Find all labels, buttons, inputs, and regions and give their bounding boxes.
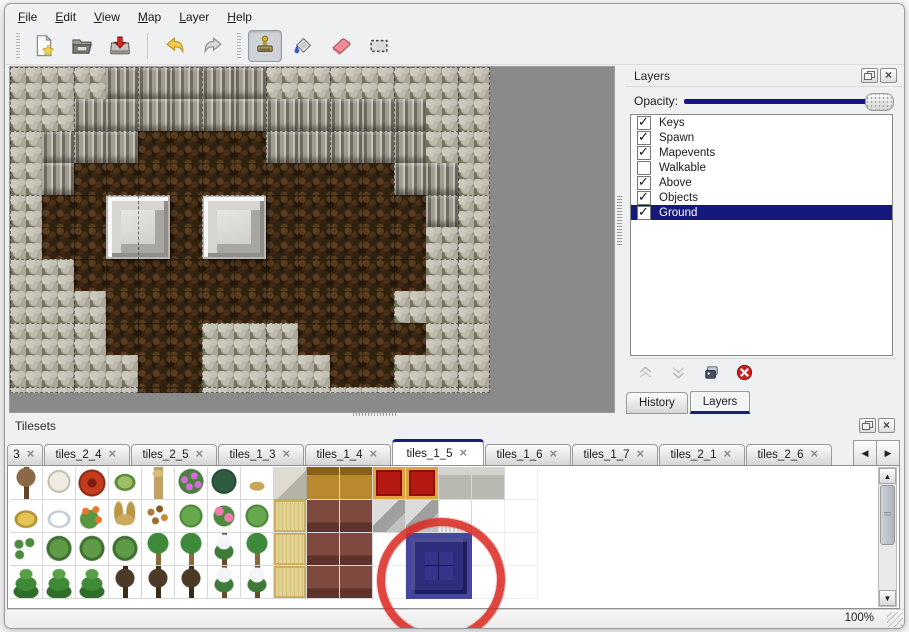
map-tile-dark-floor[interactable] [74,195,106,227]
layer-visibility-checkbox[interactable] [637,191,651,205]
map-tile-dark-floor[interactable] [138,131,170,163]
map-tile-dark-floor[interactable] [138,291,170,323]
map-tile-dark-floor[interactable] [234,259,266,291]
map-tile-dark-floor[interactable] [298,227,330,259]
map-tile-dark-floor[interactable] [298,195,330,227]
tileset-tile-conifer[interactable] [43,566,76,599]
map-tile-pale-rock[interactable] [426,387,458,393]
tileset-tile-wood-tile[interactable] [307,467,340,500]
map-tile-pale-rock[interactable] [202,323,234,355]
map-tile-pale-rock[interactable] [10,99,42,131]
layers-panel-title: Layers [634,69,670,83]
map-tile-cliff-wall[interactable] [362,99,394,131]
map-tile-pale-rock[interactable] [426,227,458,259]
layer-row-ground[interactable]: Ground [631,205,892,220]
map-tile-cliff-wall[interactable] [202,67,234,99]
map-tile-dark-floor[interactable] [170,195,202,227]
tileset-tile-maroon-tile[interactable] [340,566,373,599]
map-tile-dark-floor[interactable] [42,195,74,227]
tileset-tile-blank[interactable] [472,566,505,599]
map-tile-dark-floor[interactable] [106,259,138,291]
map-tile-dark-floor[interactable] [202,291,234,323]
tileset-tile-palm[interactable] [241,533,274,566]
tileset-tile-blank[interactable] [505,500,538,533]
map-tile-cliff-wall[interactable] [138,99,170,131]
map-tile-pale-rock[interactable] [10,195,42,227]
map-tile-dark-floor[interactable] [202,131,234,163]
map-tile-dark-floor[interactable] [74,227,106,259]
tileset-tile-carpet-red[interactable] [406,467,439,500]
map-tile-pale-rock[interactable] [10,227,42,259]
tileset-tile-tree-dead[interactable] [10,467,43,500]
tileset-tile-conifer-snow[interactable] [208,566,241,599]
map-tile-pale-rock[interactable] [394,67,426,99]
dock-tab-layers[interactable]: Layers [690,391,751,414]
tileset-tile-curtain-white[interactable] [439,500,472,533]
tileset-tile-flower-red-big[interactable] [76,467,109,500]
layer-name-label: Objects [659,192,698,204]
tileset-tile-carpet-red[interactable] [373,467,406,500]
map-tile-dark-floor[interactable] [362,163,394,195]
map-tile-dark-floor[interactable] [138,163,170,195]
map-tile-pale-rock[interactable] [458,163,490,195]
map-tile-pale-rock[interactable] [106,387,138,393]
undo-button[interactable] [158,30,192,62]
toolbar-drag-handle[interactable] [236,33,242,59]
map-tile-pale-rock[interactable] [458,227,490,259]
map-tile-pale-rock[interactable] [298,355,330,387]
map-tile-pale-rock[interactable] [42,387,74,393]
map-tile-dark-floor[interactable] [170,387,202,393]
map-tile-pale-rock[interactable] [74,291,106,323]
opacity-label: Opacity: [634,94,678,108]
tileset-tab-tiles_1_4[interactable]: tiles_1_4 [305,444,391,466]
map-tile-cliff-wall[interactable] [202,99,234,131]
layer-visibility-checkbox[interactable] [637,131,651,145]
tileset-tile-shelf-gray[interactable] [373,500,406,533]
tileset-tile-lilypad[interactable] [175,500,208,533]
map-tile-cliff-wall[interactable] [330,131,362,163]
map-tile-pale-rock[interactable] [266,323,298,355]
map-tile-dark-floor[interactable] [170,227,202,259]
map-tile-pale-rock[interactable] [426,259,458,291]
map-tile-dark-floor[interactable] [138,259,170,291]
map-tile-pale-rock[interactable] [42,99,74,131]
map-tile-cliff-wall[interactable] [170,99,202,131]
tileset-tile-gray-tile[interactable] [439,467,472,500]
scroll-down-button[interactable]: ▼ [879,590,896,606]
map-tile-dark-floor[interactable] [394,259,426,291]
map-tile-dark-floor[interactable] [106,163,138,195]
map-tile-pale-rock[interactable] [266,387,298,393]
map-tile-dark-floor[interactable] [266,195,298,227]
map-tile-dark-floor[interactable] [362,259,394,291]
tileset-tile-palm[interactable] [142,533,175,566]
map-tile-dark-floor[interactable] [106,291,138,323]
map-tile-dark-floor[interactable] [362,227,394,259]
map-tile-cliff-wall[interactable] [74,131,106,163]
layer-row-above[interactable]: Above [631,175,892,190]
map-canvas[interactable] [9,66,615,413]
layer-duplicate-button[interactable] [698,363,724,385]
map-tile-pale-rock[interactable] [74,67,106,99]
map-tile-cliff-wall[interactable] [106,67,138,99]
map-tile-pale-rock[interactable] [394,291,426,323]
map-tile-pale-rock[interactable] [458,355,490,387]
zoom-level-label: 100% [845,612,874,624]
map-tile-pale-rock[interactable] [266,355,298,387]
map-tile-pale-rock[interactable] [10,355,42,387]
vertical-splitter[interactable] [613,66,626,412]
tileset-tile-tree-dark[interactable] [175,566,208,599]
close-tab-icon[interactable] [109,450,119,460]
map-tile-dark-floor[interactable] [330,323,362,355]
map-tile-dark-floor[interactable] [362,195,394,227]
rect-select-button[interactable] [362,30,396,62]
map-tile-dark-floor[interactable] [138,355,170,387]
float-panel-icon[interactable] [861,68,878,83]
save-button[interactable] [103,30,137,62]
tileset-tab-label: tiles_1_7 [583,449,629,461]
tileset-tile-trunk-tan[interactable] [142,467,175,500]
map-tile-dark-floor[interactable] [170,259,202,291]
map-tile-pale-rock[interactable] [362,387,394,393]
menu-layer[interactable]: Layer [170,7,218,27]
layer-delete-button[interactable] [731,363,757,385]
map-tile-dark-floor[interactable] [170,291,202,323]
map-tile-cliff-wall[interactable] [234,99,266,131]
map-tile-pale-rock[interactable] [458,67,490,99]
menu-view[interactable]: View [85,7,129,27]
tileset-tile-tatami[interactable] [274,500,307,533]
map-tile-dark-floor[interactable] [330,259,362,291]
map-tile-pale-rock[interactable] [74,387,106,393]
map-tile-pale-rock[interactable] [266,67,298,99]
tileset-tile-lilypad[interactable] [241,500,274,533]
float-panel-icon[interactable] [859,418,876,433]
close-tab-icon[interactable] [460,449,470,459]
tileset-tile-tatami[interactable] [274,566,307,599]
map-tile-pale-rock[interactable] [10,67,42,99]
map-tile-pale-rock[interactable] [42,259,74,291]
tileset-tile-stump-green[interactable] [109,467,142,500]
close-tab-icon[interactable] [811,450,821,460]
map-tile-dark-floor[interactable] [106,323,138,355]
map-tile-dark-floor[interactable] [234,163,266,195]
close-tab-icon[interactable] [196,450,206,460]
map-tile-cliff-wall[interactable] [106,99,138,131]
map-tile-pale-rock[interactable] [458,387,490,393]
toolbar-separator [147,33,148,59]
map-tile-cliff-wall[interactable] [138,67,170,99]
layer-down-button[interactable] [665,363,691,385]
map-tile-pale-rock[interactable] [74,355,106,387]
map-tile-dark-floor[interactable] [234,291,266,323]
map-tile-cliff-wall[interactable] [362,131,394,163]
close-tab-icon[interactable] [27,450,37,460]
map-tile-pale-rock[interactable] [330,67,362,99]
map-tile-pale-rock[interactable] [458,323,490,355]
map-tile-dark-floor[interactable] [266,291,298,323]
map-tile-dark-floor[interactable] [330,355,362,387]
map-tile-pale-rock[interactable] [74,323,106,355]
map-tile-dark-floor[interactable] [298,163,330,195]
map-tile-cliff-wall[interactable] [266,99,298,131]
tileset-tab-tiles_1_3[interactable]: tiles_1_3 [218,444,304,466]
map-tile-cliff-wall[interactable] [394,131,426,163]
tileset-tab-label: tiles_1_5 [406,448,452,460]
tileset-tile-wood-tile[interactable] [340,467,373,500]
close-panel-icon[interactable] [878,418,895,433]
map-tile-pale-rock[interactable] [10,259,42,291]
close-tab-icon[interactable] [550,450,560,460]
tileset-tab-tiles_2_4[interactable]: tiles_2_4 [44,444,130,466]
map-tile-pale-rock[interactable] [394,387,426,393]
map-tile-dark-floor[interactable] [266,227,298,259]
tileset-tab-tiles_1_7[interactable]: tiles_1_7 [572,444,658,466]
map-tile-dark-floor[interactable] [202,259,234,291]
tileset-tile-weed-tan[interactable] [241,467,274,500]
tileset-tile-flowers-pink[interactable] [208,500,241,533]
map-tile-cliff-wall[interactable] [266,131,298,163]
map-tile-pale-rock[interactable] [458,195,490,227]
map-tile-pale-rock[interactable] [362,67,394,99]
map-tile-pale-rock[interactable] [298,387,330,393]
map-tile-cliff-wall[interactable] [74,99,106,131]
map-tile-pale-rock[interactable] [106,355,138,387]
redo-button[interactable] [196,30,230,62]
map-tile-dark-floor[interactable] [266,163,298,195]
close-tab-icon[interactable] [724,450,734,460]
map-tile-cliff-wall[interactable] [234,67,266,99]
map-tile-dark-floor[interactable] [394,227,426,259]
close-tab-icon[interactable] [637,450,647,460]
map-tile-dark-floor[interactable] [202,163,234,195]
dock-tab-history[interactable]: History [626,392,688,414]
tileset-tile-shrub-white[interactable] [43,467,76,500]
map-tile-pale-rock[interactable] [458,99,490,131]
map-tile-cliff-wall[interactable] [170,67,202,99]
map-tile-cliff-wall[interactable] [42,163,74,195]
map-tile-dark-floor[interactable] [138,323,170,355]
map-tile-cliff-wall[interactable] [42,131,74,163]
map-tile-pale-rock[interactable] [42,291,74,323]
map-tile-pale-rock[interactable] [234,355,266,387]
map-tile-dark-floor[interactable] [266,259,298,291]
layer-row-keys[interactable]: Keys [631,115,892,130]
tileset-tab-tiles_1_6[interactable]: tiles_1_6 [485,444,571,466]
map-tile-dark-floor[interactable] [362,291,394,323]
map-tile-dark-floor[interactable] [234,131,266,163]
tileset-tile-maroon-tile[interactable] [307,500,340,533]
tileset-tab-tiles_2_6[interactable]: tiles_2_6 [746,444,832,466]
map-tile-pale-rock[interactable] [426,291,458,323]
stamp-button[interactable] [248,30,282,62]
layer-visibility-checkbox[interactable] [637,116,651,130]
close-tab-icon[interactable] [283,450,293,460]
tileset-tab-3[interactable]: 3 [7,444,43,466]
fill-bucket-button[interactable] [286,30,320,62]
tileset-tile-gray-tile[interactable] [472,467,505,500]
new-file-button[interactable] [27,30,61,62]
tileset-vertical-scrollbar[interactable]: ▲ ▼ [878,467,897,607]
tileset-tile-leaves[interactable] [142,500,175,533]
tileset-tile-conifer[interactable] [76,566,109,599]
tileset-tile-palm[interactable] [175,533,208,566]
map-tile-cliff-wall[interactable] [394,99,426,131]
tileset-tile-conifer[interactable] [10,566,43,599]
map-tile-pale-rock[interactable] [458,131,490,163]
tileset-tile-tatami[interactable] [274,533,307,566]
tileset-tile-blank[interactable] [472,533,505,566]
map-tile-pale-rock[interactable] [202,387,234,393]
map-tile-pale-rock[interactable] [10,387,42,393]
layer-row-spawn[interactable]: Spawn [631,130,892,145]
map-tile-pale-rock[interactable] [330,387,362,393]
tileset-tile-maroon-tile[interactable] [340,500,373,533]
tileset-tile-maroon-tile[interactable] [307,533,340,566]
tileset-tile-conifer-snow[interactable] [208,533,241,566]
opacity-slider[interactable] [684,91,894,111]
map-tile-dark-floor[interactable] [394,323,426,355]
layer-visibility-checkbox[interactable] [637,176,651,190]
map-tile-pale-rock[interactable] [298,67,330,99]
map-tile-dark-floor[interactable] [362,355,394,387]
eraser-button[interactable] [324,30,358,62]
resize-grip[interactable] [887,612,903,627]
tileset-tile-flowers-orange[interactable] [76,500,109,533]
map-tile-dark-floor[interactable] [138,387,170,393]
map-tile-cliff-wall[interactable] [330,99,362,131]
map-tile-dark-floor[interactable] [170,355,202,387]
tileset-tile-blank[interactable] [505,566,538,599]
tileset-tile-blank[interactable] [505,467,538,500]
layer-actions-toolbar [632,358,896,387]
tileset-tile-maroon-tile[interactable] [307,566,340,599]
tileset-tab-tiles_2_5[interactable]: tiles_2_5 [131,444,217,466]
layer-visibility-checkbox[interactable] [637,146,651,160]
tileset-tile-snow-mound[interactable] [43,500,76,533]
layer-row-walkable[interactable]: Walkable [631,160,892,175]
map-tile-cliff-wall[interactable] [298,131,330,163]
map-block-tile[interactable] [106,195,170,259]
menu-edit[interactable]: Edit [46,7,85,27]
tileset-tile-blank[interactable] [373,566,406,599]
map-tile-dark-floor[interactable] [330,163,362,195]
map-block-tile[interactable] [202,195,266,259]
map-tile-pale-rock[interactable] [458,259,490,291]
tileset-tile-grass-dry[interactable] [109,500,142,533]
map-tile-dark-floor[interactable] [170,323,202,355]
map-tile-pale-rock[interactable] [10,323,42,355]
map-tile-pale-rock[interactable] [42,355,74,387]
layer-up-button[interactable] [632,363,658,385]
tileset-tile-shelf-gray[interactable] [406,500,439,533]
tileset-tile-bush-green[interactable] [43,533,76,566]
layer-row-mapevents[interactable]: Mapevents [631,145,892,160]
map-tile-pale-rock[interactable] [426,99,458,131]
tileset-tile-fern-dark[interactable] [208,467,241,500]
toolbar-drag-handle[interactable] [15,33,21,59]
tileset-tile-blank[interactable] [373,533,406,566]
map-tile-cliff-wall[interactable] [426,163,458,195]
map-tile-dark-floor[interactable] [42,227,74,259]
tileset-tile-tree-dark[interactable] [142,566,175,599]
tileset-tile-stone-tile[interactable] [274,467,307,500]
open-folder-button[interactable] [65,30,99,62]
map-tile-pale-rock[interactable] [42,67,74,99]
tileset-tile-maroon-tile[interactable] [340,533,373,566]
map-tile-pale-rock[interactable] [234,323,266,355]
scroll-tabs-right-button[interactable]: ▶ [877,440,900,467]
tileset-tile-blank[interactable] [505,533,538,566]
map-tile-dark-floor[interactable] [330,195,362,227]
scrollbar-thumb[interactable] [880,485,895,545]
menu-map[interactable]: Map [129,7,170,27]
layer-visibility-checkbox[interactable] [637,161,651,175]
tileset-tile-tree-dark[interactable] [109,566,142,599]
map-tile-pale-rock[interactable] [42,323,74,355]
map-tile-pale-rock[interactable] [394,355,426,387]
layer-row-objects[interactable]: Objects [631,190,892,205]
map-tile-pale-rock[interactable] [426,323,458,355]
close-tab-icon[interactable] [370,450,380,460]
map-tile-dark-floor[interactable] [74,259,106,291]
tileset-tile-bush-green[interactable] [109,533,142,566]
map-tile-pale-rock[interactable] [10,131,42,163]
map-tile-pale-rock[interactable] [10,291,42,323]
map-tile-dark-floor[interactable] [170,163,202,195]
map-tile-pale-rock[interactable] [426,355,458,387]
map-tile-pale-rock[interactable] [458,291,490,323]
map-tile-cliff-wall[interactable] [426,195,458,227]
tileset-tab-tiles_1_5[interactable]: tiles_1_5 [392,439,484,466]
map-tile-dark-floor[interactable] [330,227,362,259]
menu-file[interactable]: File [9,7,46,27]
map-tile-cliff-wall[interactable] [394,163,426,195]
map-tile-dark-floor[interactable] [298,323,330,355]
map-tile-cliff-wall[interactable] [298,99,330,131]
scroll-up-button[interactable]: ▲ [879,468,896,484]
map-tile-pale-rock[interactable] [426,67,458,99]
map-tile-dark-floor[interactable] [298,291,330,323]
map-tile-dark-floor[interactable] [394,195,426,227]
tileset-tile-hay-mound[interactable] [10,500,43,533]
scroll-tabs-left-button[interactable]: ◀ [853,440,877,467]
map-tile-dark-floor[interactable] [362,323,394,355]
map-tile-dark-floor[interactable] [298,259,330,291]
map-tile-pale-rock[interactable] [426,131,458,163]
tileset-tab-tiles_2_1[interactable]: tiles_2_1 [659,444,745,466]
map-tile-cliff-wall[interactable] [106,131,138,163]
map-tile-pale-rock[interactable] [234,387,266,393]
map-tile-dark-floor[interactable] [170,131,202,163]
tileset-tile-blank[interactable] [472,500,505,533]
tileset-tile-conifer-snow[interactable] [241,566,274,599]
layer-visibility-checkbox[interactable] [637,206,651,220]
selected-blue-tile[interactable] [406,533,472,599]
tileset-tile-bush-green[interactable] [76,533,109,566]
menu-help[interactable]: Help [218,7,261,27]
map-tile-pale-rock[interactable] [202,355,234,387]
close-panel-icon[interactable] [880,68,897,83]
tileset-tile-bush-purple[interactable] [175,467,208,500]
map-tile-pale-rock[interactable] [10,163,42,195]
tileset-tile-sprouts[interactable] [10,533,43,566]
map-tile-dark-floor[interactable] [74,163,106,195]
opacity-slider-handle[interactable] [865,93,894,111]
map-tile-dark-floor[interactable] [330,291,362,323]
